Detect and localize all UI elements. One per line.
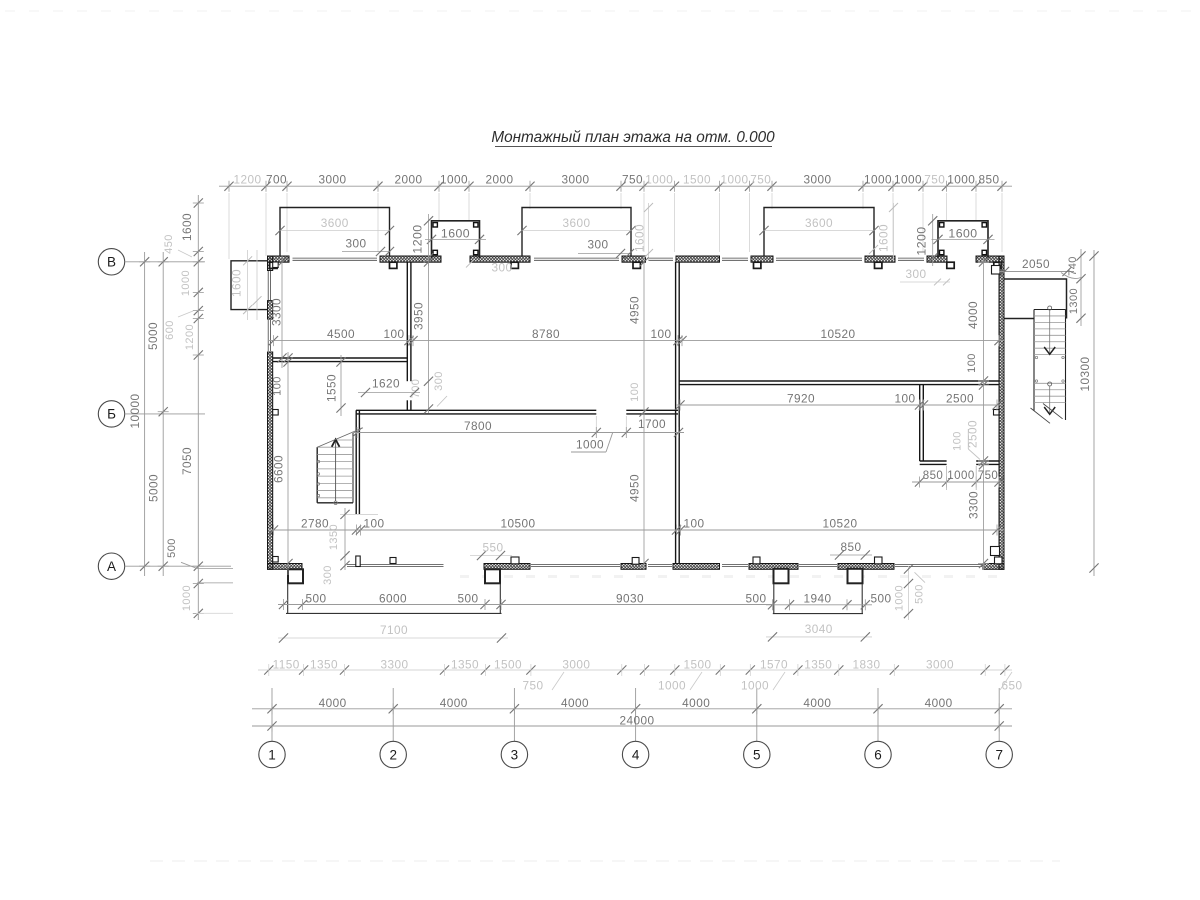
svg-text:1200: 1200 (184, 324, 196, 350)
svg-text:6000: 6000 (379, 591, 407, 605)
svg-text:6600: 6600 (272, 455, 286, 483)
svg-text:1350: 1350 (451, 657, 479, 671)
svg-text:1000: 1000 (658, 678, 686, 692)
svg-text:1500: 1500 (683, 657, 711, 671)
svg-text:500: 500 (870, 592, 891, 606)
svg-text:750: 750 (924, 173, 945, 187)
svg-text:100: 100 (894, 392, 915, 406)
svg-text:8780: 8780 (532, 327, 560, 341)
svg-text:10000: 10000 (128, 393, 142, 428)
svg-text:100: 100 (363, 517, 384, 531)
svg-text:500: 500 (457, 591, 478, 605)
svg-text:10520: 10520 (820, 327, 855, 341)
svg-text:3040: 3040 (805, 622, 833, 636)
svg-text:100: 100 (952, 431, 964, 451)
svg-text:7920: 7920 (787, 392, 815, 406)
svg-text:100: 100 (650, 327, 671, 341)
svg-text:5000: 5000 (147, 474, 161, 502)
svg-text:1940: 1940 (803, 592, 831, 606)
svg-text:1700: 1700 (638, 417, 666, 431)
svg-text:4000: 4000 (803, 696, 831, 710)
svg-text:2780: 2780 (301, 517, 329, 531)
svg-text:700: 700 (266, 173, 287, 187)
svg-text:1000: 1000 (645, 173, 673, 187)
svg-text:450: 450 (163, 234, 175, 254)
svg-text:1300: 1300 (1068, 288, 1080, 314)
svg-text:1000: 1000 (894, 585, 906, 611)
svg-text:1200: 1200 (411, 224, 425, 253)
svg-text:100: 100 (683, 517, 704, 531)
svg-text:300: 300 (345, 237, 366, 251)
svg-text:750: 750 (978, 470, 999, 482)
svg-text:Монтажный план этажа на отм. 0: Монтажный план этажа на отм. 0.000 (491, 129, 775, 146)
svg-text:300: 300 (587, 238, 608, 252)
svg-text:4000: 4000 (319, 696, 347, 710)
svg-text:4000: 4000 (966, 301, 980, 329)
svg-text:1200: 1200 (915, 226, 929, 255)
svg-text:7: 7 (995, 747, 1003, 762)
svg-text:2000: 2000 (485, 173, 513, 187)
svg-text:1000: 1000 (864, 173, 892, 187)
svg-text:1000: 1000 (181, 585, 193, 611)
svg-text:1500: 1500 (494, 657, 522, 671)
svg-text:3950: 3950 (412, 302, 426, 330)
svg-text:1000: 1000 (576, 438, 604, 452)
svg-text:5: 5 (753, 747, 761, 762)
svg-text:3000: 3000 (562, 657, 590, 671)
svg-text:4000: 4000 (561, 696, 589, 710)
svg-text:5000: 5000 (146, 322, 160, 350)
svg-text:2500: 2500 (966, 420, 980, 448)
svg-text:10520: 10520 (822, 517, 857, 531)
svg-text:650: 650 (1001, 678, 1022, 692)
svg-text:3000: 3000 (803, 173, 831, 187)
svg-text:100: 100 (629, 382, 641, 402)
svg-text:1350: 1350 (310, 657, 338, 671)
svg-text:850: 850 (840, 540, 861, 554)
svg-text:1350: 1350 (328, 524, 340, 550)
svg-text:100: 100 (966, 353, 978, 373)
svg-text:750: 750 (750, 173, 771, 187)
svg-text:1350: 1350 (804, 657, 832, 671)
svg-text:850: 850 (923, 470, 944, 482)
svg-text:Б: Б (107, 407, 116, 422)
svg-text:4500: 4500 (327, 327, 355, 341)
svg-text:4950: 4950 (628, 296, 642, 324)
svg-text:1000: 1000 (947, 470, 974, 482)
svg-text:1000: 1000 (180, 270, 192, 296)
svg-text:3000: 3000 (318, 173, 346, 187)
svg-text:750: 750 (522, 678, 543, 692)
svg-text:3600: 3600 (562, 216, 590, 230)
svg-text:10500: 10500 (500, 517, 535, 531)
svg-text:300: 300 (322, 565, 334, 585)
svg-text:10300: 10300 (1078, 356, 1092, 391)
svg-text:500: 500 (166, 538, 178, 558)
svg-text:500: 500 (745, 592, 766, 606)
svg-text:1830: 1830 (852, 657, 880, 671)
svg-text:1500: 1500 (683, 173, 711, 187)
svg-text:1000: 1000 (947, 173, 975, 187)
svg-text:1000: 1000 (741, 678, 769, 692)
svg-text:А: А (107, 559, 116, 574)
svg-text:850: 850 (978, 173, 999, 187)
svg-text:3600: 3600 (805, 216, 833, 230)
svg-text:3300: 3300 (270, 298, 284, 326)
svg-text:600: 600 (164, 320, 176, 340)
svg-text:7100: 7100 (380, 623, 408, 637)
svg-text:500: 500 (914, 584, 926, 604)
svg-text:1620: 1620 (372, 377, 400, 391)
svg-text:1000: 1000 (440, 173, 468, 187)
svg-text:3600: 3600 (321, 216, 349, 230)
svg-text:300: 300 (491, 261, 512, 275)
svg-text:1: 1 (268, 747, 276, 762)
svg-text:740: 740 (1067, 256, 1079, 276)
svg-text:1150: 1150 (273, 657, 300, 671)
svg-text:2: 2 (389, 747, 397, 762)
svg-text:4: 4 (632, 747, 640, 762)
svg-text:1000: 1000 (720, 173, 748, 187)
svg-text:7800: 7800 (464, 419, 492, 433)
svg-text:550: 550 (482, 541, 503, 555)
svg-text:В: В (107, 255, 116, 270)
svg-text:2000: 2000 (394, 173, 422, 187)
svg-text:3300: 3300 (967, 491, 981, 519)
svg-text:1600: 1600 (441, 226, 470, 240)
svg-text:100: 100 (272, 376, 284, 396)
svg-text:3: 3 (511, 747, 519, 762)
svg-text:300: 300 (905, 267, 926, 281)
svg-text:750: 750 (622, 173, 643, 187)
svg-text:1570: 1570 (760, 657, 788, 671)
svg-text:3300: 3300 (380, 657, 408, 671)
svg-text:2500: 2500 (946, 392, 974, 406)
svg-text:1600: 1600 (230, 269, 244, 297)
svg-text:1550: 1550 (325, 374, 339, 402)
svg-text:7050: 7050 (180, 447, 194, 475)
svg-text:4000: 4000 (925, 696, 953, 710)
svg-text:4000: 4000 (682, 696, 710, 710)
svg-text:1200: 1200 (233, 173, 261, 187)
svg-text:9030: 9030 (616, 591, 644, 605)
svg-text:3000: 3000 (926, 657, 954, 671)
svg-text:1600: 1600 (948, 226, 977, 240)
svg-text:24000: 24000 (619, 714, 654, 728)
svg-text:1000: 1000 (894, 173, 922, 187)
svg-text:1600: 1600 (877, 224, 891, 252)
svg-text:3000: 3000 (561, 173, 589, 187)
svg-text:6: 6 (874, 747, 882, 762)
svg-text:1600: 1600 (633, 224, 647, 252)
svg-text:2050: 2050 (1022, 257, 1050, 271)
svg-text:1600: 1600 (180, 213, 194, 241)
svg-text:500: 500 (305, 591, 326, 605)
svg-text:100: 100 (383, 327, 404, 341)
svg-text:300: 300 (433, 371, 445, 391)
svg-text:4000: 4000 (440, 696, 468, 710)
svg-text:4950: 4950 (628, 474, 642, 502)
